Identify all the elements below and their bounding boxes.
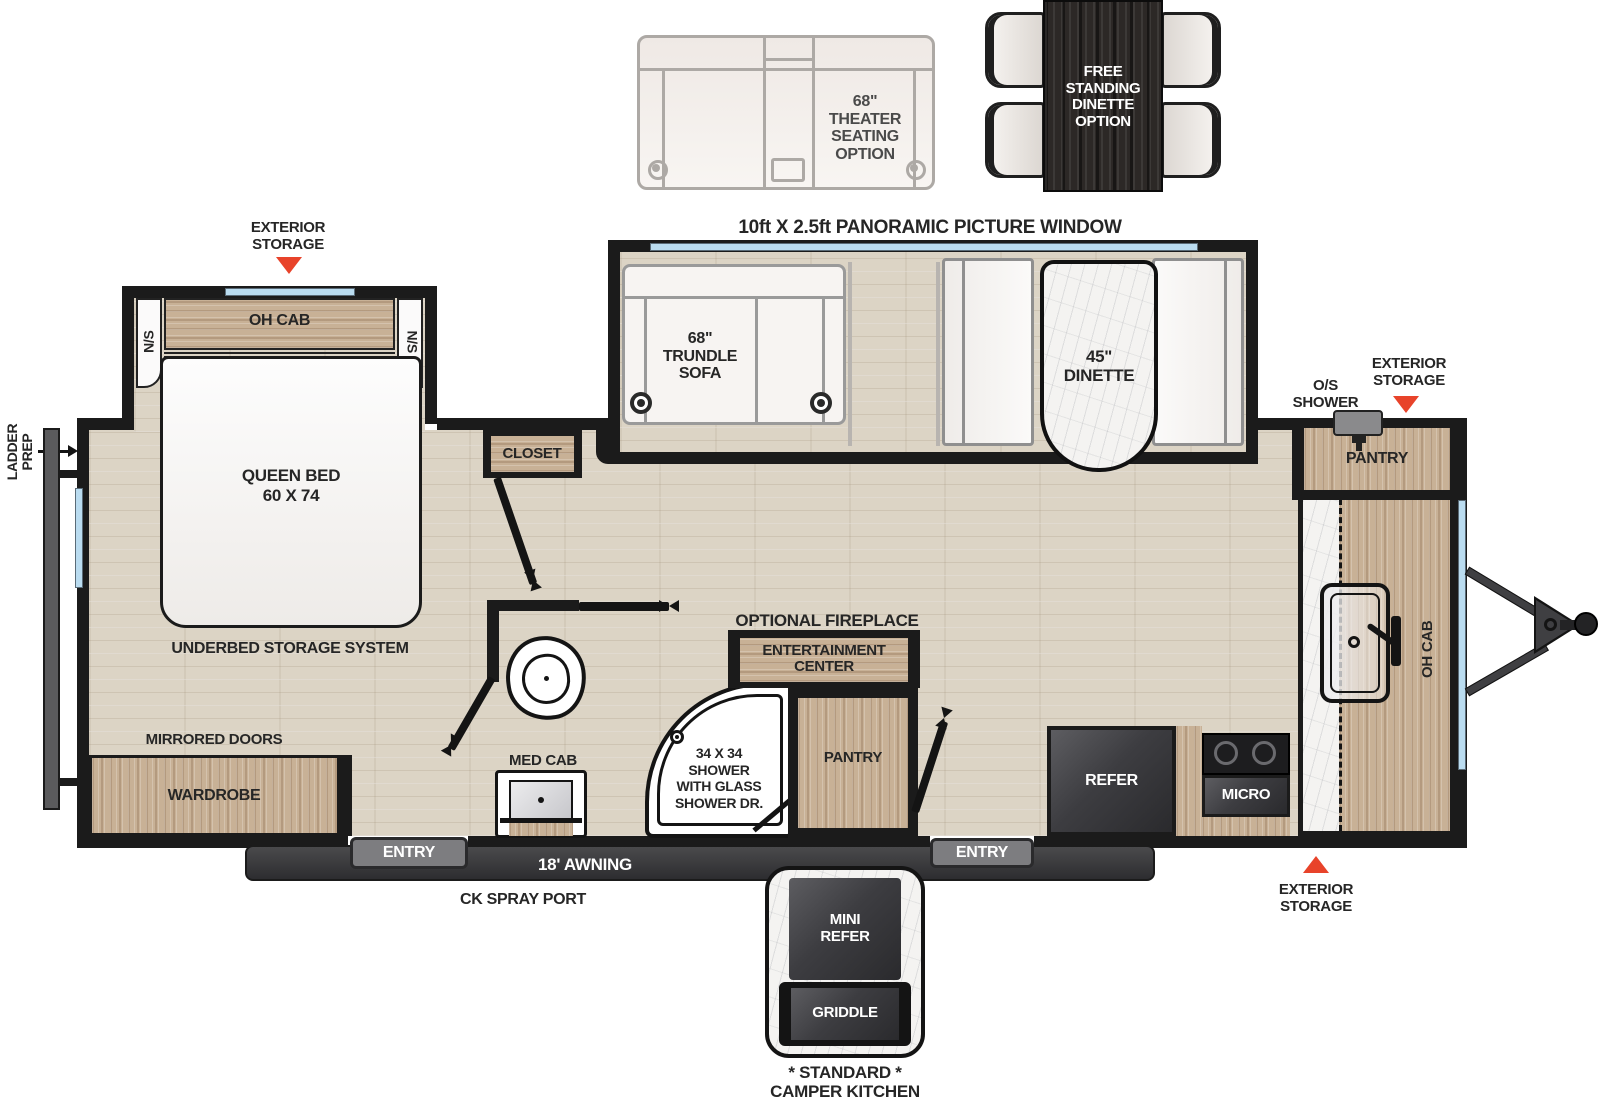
exterior-storage-arrow-icon [276, 257, 302, 274]
theater-cupholder-icon [910, 164, 918, 172]
med-cab-label: MED CAB [483, 753, 603, 770]
ladder-prep-label: LADDER PREP [5, 397, 35, 507]
shower-label: 34 X 34 SHOWER WITH GLASS SHOWER DR. [643, 745, 795, 811]
bumper-bracket [60, 470, 78, 478]
kitchen-wood-strip [1176, 726, 1202, 836]
dinette-chair [985, 12, 1045, 88]
med-cab-knob-icon [538, 797, 544, 803]
bedroom-oh-cab-label: OH CAB [164, 312, 395, 330]
front-pantry-label: PANTRY [1304, 450, 1450, 468]
burner-icon [1214, 741, 1238, 765]
dinette-chair [1161, 12, 1221, 88]
rear-bumper [43, 428, 60, 810]
slide-lip [608, 452, 1258, 464]
dinette-bench-back-line [962, 258, 965, 446]
med-cab-base [509, 823, 573, 836]
bedroom-slide-wall [425, 286, 437, 424]
dinette-bench-back-line [1224, 258, 1227, 446]
theater-back-line [640, 68, 932, 71]
mid-pantry-label: PANTRY [798, 750, 908, 767]
bedroom-window [225, 288, 355, 296]
exterior-storage-arrow-icon [1303, 856, 1329, 873]
front-window [1458, 500, 1466, 770]
closet-label: CLOSET [482, 446, 582, 463]
bath-door [579, 602, 669, 611]
dinette-bench [942, 258, 1034, 446]
hitch-ball-icon [1574, 612, 1598, 636]
rear-window [75, 488, 83, 588]
entertainment-center-label: ENTERTAINMENT CENTER [740, 643, 908, 675]
exterior-storage-bedroom-label: EXTERIOR STORAGE [213, 220, 363, 253]
top-wall [437, 418, 608, 430]
entry-label: ENTRY [956, 844, 1008, 862]
living-slide-wall [1246, 240, 1258, 456]
outside-shower-stem-icon [1352, 436, 1366, 443]
mirrored-doors-label: MIRRORED DOORS [124, 732, 304, 749]
panoramic-window-label: 10ft X 2.5ft PANORAMIC PICTURE WINDOW [630, 218, 1230, 239]
exterior-storage-arrow-icon [1393, 396, 1419, 413]
kitchen-wood-strip [1202, 817, 1290, 836]
ck-spray-port-label: CK SPRAY PORT [433, 891, 613, 909]
entry-door: ENTRY [350, 837, 468, 869]
wardrobe-label: WARDROBE [104, 787, 324, 805]
door-hinge-icon [659, 600, 679, 612]
sofa-cupholder-icon [637, 399, 645, 407]
dinette-chair [985, 102, 1045, 178]
shower-drain-icon [675, 735, 679, 739]
nightstand-label: N/S [141, 312, 156, 372]
floorplan-canvas: 68" THEATER SEATING OPTION FREE STANDING… [0, 0, 1600, 1120]
free-standing-dinette-label: FREE STANDING DINETTE OPTION [1043, 64, 1163, 130]
theater-cupholder-icon [652, 164, 660, 172]
outside-shower-stem-icon [1356, 443, 1362, 451]
arrow-right-icon [68, 445, 78, 457]
toilet-dot [544, 676, 549, 681]
camper-kitchen-caption: * STANDARD * CAMPER KITCHEN [752, 1063, 938, 1101]
trundle-sofa-label: 68" TRUNDLE SOFA [640, 330, 760, 383]
bedroom-slide-wall [122, 286, 134, 424]
burner-icon [1252, 741, 1276, 765]
theater-console-line [763, 58, 812, 61]
hitch-pin-icon [1544, 618, 1557, 631]
optional-fireplace-label: OPTIONAL FIREPLACE [727, 612, 927, 631]
entry-door: ENTRY [930, 838, 1034, 868]
bumper-bracket [60, 778, 78, 786]
awning-label: 18' AWNING [480, 856, 690, 875]
slide-track [936, 262, 940, 446]
dinette-chair [1161, 102, 1221, 178]
theater-seating-label: 68" THEATER SEATING OPTION [797, 93, 933, 163]
slide-track [848, 262, 852, 446]
panoramic-window-strip [650, 243, 1198, 251]
outside-shower-fixture [1333, 410, 1383, 436]
entry-label: ENTRY [383, 844, 435, 862]
rear-wall [77, 418, 89, 848]
wardrobe-wall-stub [340, 755, 352, 836]
refer-label: REFER [1047, 772, 1176, 790]
sink-drain-icon [1348, 636, 1360, 648]
underbed-storage-label: UNDERBED STORAGE SYSTEM [115, 640, 465, 658]
dinette-bench [1152, 258, 1244, 446]
exterior-storage-rear-label: EXTERIOR STORAGE [1240, 882, 1392, 915]
bath-wall [487, 600, 499, 682]
sofa-back-line [622, 296, 846, 299]
living-slide-wall [608, 240, 620, 456]
bath-wall [487, 600, 579, 611]
kitchen-oh-cab-label: OH CAB [1420, 607, 1437, 691]
mini-refer-label: MINI REFER [789, 912, 901, 945]
slide-lip-stub [596, 418, 608, 464]
queen-bed-label: QUEEN BED 60 X 74 [166, 466, 416, 506]
griddle-label: GRIDDLE [791, 1005, 899, 1022]
dinette-label: 45" DINETTE [1040, 347, 1158, 385]
sofa-cupholder-icon [817, 399, 825, 407]
micro-label: MICRO [1202, 787, 1290, 804]
exterior-storage-front-label: EXTERIOR STORAGE [1335, 356, 1483, 389]
